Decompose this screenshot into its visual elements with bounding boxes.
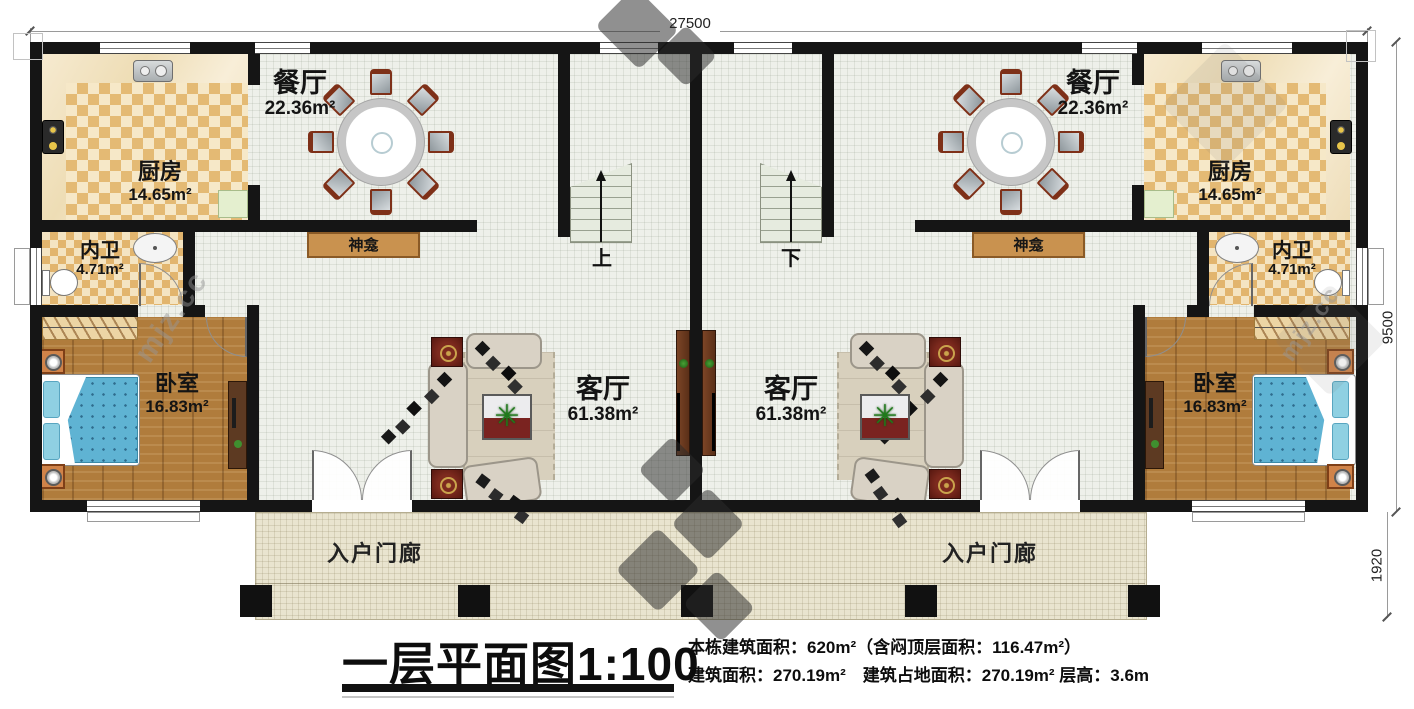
dimension-bracket <box>13 33 43 60</box>
bedroom-desk <box>1145 381 1164 469</box>
room-label-bedroom-left: 卧室 16.83m² <box>145 372 208 416</box>
porch-column <box>1128 585 1160 617</box>
round-table <box>338 99 424 185</box>
plant-icon: ✳ <box>494 402 519 432</box>
window-sill <box>87 512 200 522</box>
room-label-bedroom-right: 卧室 16.83m² <box>1183 372 1246 416</box>
wall-segment <box>248 54 260 85</box>
side-table <box>929 469 961 499</box>
window <box>30 248 42 305</box>
window <box>255 42 310 54</box>
porch-label-right: 入户门廊 <box>942 536 1038 568</box>
shrine-cabinet: 神龛 <box>972 232 1085 258</box>
pillow <box>1332 423 1349 460</box>
dining-chair <box>1000 189 1022 215</box>
room-label-dining-right: 餐厅 22.36m² <box>1058 68 1129 120</box>
wall-segment <box>1187 305 1209 317</box>
tv-cabinet <box>676 330 690 456</box>
dimension-bracket <box>1346 30 1376 62</box>
bath-sink <box>1215 233 1259 263</box>
nightstand <box>1327 464 1354 489</box>
wall-segment <box>248 185 260 220</box>
room-area: 61.38m² <box>568 404 639 425</box>
stairs-up-label: 上 <box>592 242 612 271</box>
room-area: 16.83m² <box>145 397 208 416</box>
wall-segment <box>30 305 138 317</box>
wall-segment <box>915 220 1350 232</box>
coffee-table: ✳ <box>482 394 532 440</box>
room-name: 厨房 <box>128 160 191 185</box>
round-table <box>968 99 1054 185</box>
room-area: 61.38m² <box>756 404 827 425</box>
door-opening <box>980 500 1080 512</box>
bath-sink <box>133 233 177 263</box>
wall-segment <box>822 54 834 237</box>
room-label-living-left: 客厅 61.38m² <box>568 374 639 426</box>
window <box>734 42 792 54</box>
window-sill <box>14 248 30 305</box>
dimension-label-porch: 1920 <box>1369 548 1386 584</box>
window-sill <box>1368 248 1384 305</box>
stats-line-2: 建筑面积：270.19m² 建筑占地面积：270.19m² 层高：3.6m <box>688 662 1149 690</box>
side-table <box>431 469 463 499</box>
nightstand <box>38 349 65 374</box>
kitchen-sink <box>133 60 173 82</box>
porch-column <box>240 585 272 617</box>
room-label-bath-right: 内卫 4.71m² <box>1268 240 1316 279</box>
room-name: 内卫 <box>76 240 124 262</box>
stove-icon <box>42 120 64 154</box>
porch-step-line <box>255 583 1145 584</box>
room-name: 客厅 <box>568 374 639 404</box>
tv-cabinet <box>702 330 716 456</box>
side-table <box>929 337 961 367</box>
shrine-cabinet: 神龛 <box>307 232 420 258</box>
toilet-bowl <box>50 269 78 296</box>
shrine-label: 神龛 <box>1013 237 1043 254</box>
stair-arrow-icon <box>600 180 602 242</box>
porch-label-left: 入户门廊 <box>327 536 423 568</box>
window <box>100 42 190 54</box>
room-label-kitchen-right: 厨房 14.65m² <box>1198 160 1261 204</box>
room-name: 餐厅 <box>1058 68 1129 98</box>
building-stats: 本栋建筑面积：620m²（含闷顶层面积：116.47m²） 建筑面积：270.1… <box>688 634 1149 690</box>
porch-column <box>458 585 490 617</box>
door-opening <box>312 500 412 512</box>
toilet <box>42 270 50 296</box>
wall-segment <box>42 220 477 232</box>
wall-segment <box>247 305 259 512</box>
window <box>1192 500 1305 512</box>
window <box>87 500 200 512</box>
plant-icon: ✳ <box>872 402 897 432</box>
sofa <box>850 333 926 369</box>
window <box>1082 42 1137 54</box>
room-area: 22.36m² <box>1058 98 1129 119</box>
room-area: 4.71m² <box>1268 262 1316 279</box>
room-name: 卧室 <box>145 372 208 397</box>
wall-segment <box>690 54 702 500</box>
pillow <box>43 423 60 460</box>
coffee-table: ✳ <box>860 394 910 440</box>
wall-segment <box>558 54 570 237</box>
window-sill <box>1192 512 1305 522</box>
shrine-label: 神龛 <box>348 237 378 254</box>
room-name: 餐厅 <box>265 68 336 98</box>
dining-chair <box>370 189 392 215</box>
dining-chair <box>308 131 334 153</box>
room-label-bath-left: 内卫 4.71m² <box>76 240 124 279</box>
room-area: 14.65m² <box>1198 185 1261 204</box>
stair-arrowhead-icon <box>596 170 606 181</box>
title-underline-light <box>342 696 674 698</box>
dining-chair <box>428 131 454 153</box>
room-label-kitchen-left: 厨房 14.65m² <box>128 160 191 204</box>
room-name: 卧室 <box>1183 372 1246 397</box>
porch-column <box>905 585 937 617</box>
wall-segment <box>1132 54 1144 85</box>
room-area: 16.83m² <box>1183 397 1246 416</box>
stats-line-1: 本栋建筑面积：620m²（含闷顶层面积：116.47m²） <box>688 634 1149 662</box>
room-area: 22.36m² <box>265 98 336 119</box>
bedroom-desk <box>228 381 247 469</box>
room-area: 14.65m² <box>128 185 191 204</box>
wall-segment <box>1133 305 1145 512</box>
dining-chair <box>1000 69 1022 95</box>
dimension-line-right <box>1396 42 1397 512</box>
side-table <box>431 337 463 367</box>
toilet <box>1342 270 1350 296</box>
room-label-living-right: 客厅 61.38m² <box>756 374 827 426</box>
sofa <box>924 362 964 468</box>
fridge <box>1144 190 1174 218</box>
stove-icon <box>1330 120 1352 154</box>
window <box>1356 248 1368 305</box>
title-underline <box>342 684 674 692</box>
room-label-dining-left: 餐厅 22.36m² <box>265 68 336 120</box>
sofa <box>466 333 542 369</box>
closet <box>42 314 138 340</box>
stairs-down-label: 下 <box>781 242 801 271</box>
dining-chair <box>938 131 964 153</box>
room-name: 厨房 <box>1198 160 1261 185</box>
dining-chair <box>370 69 392 95</box>
room-area: 4.71m² <box>76 262 124 279</box>
room-name: 内卫 <box>1268 240 1316 262</box>
stair-arrowhead-icon <box>786 170 796 181</box>
room-name: 客厅 <box>756 374 827 404</box>
sofa <box>428 362 468 468</box>
fridge <box>218 190 248 218</box>
dining-chair <box>1058 131 1084 153</box>
stair-arrow-icon <box>790 180 792 242</box>
dimension-line-porch <box>1387 512 1388 618</box>
floor-plan-canvas: ✳ ✳ 神龛 神龛 <box>0 0 1414 709</box>
nightstand <box>38 464 65 489</box>
pillow <box>43 381 60 418</box>
wall-segment <box>1132 185 1144 220</box>
